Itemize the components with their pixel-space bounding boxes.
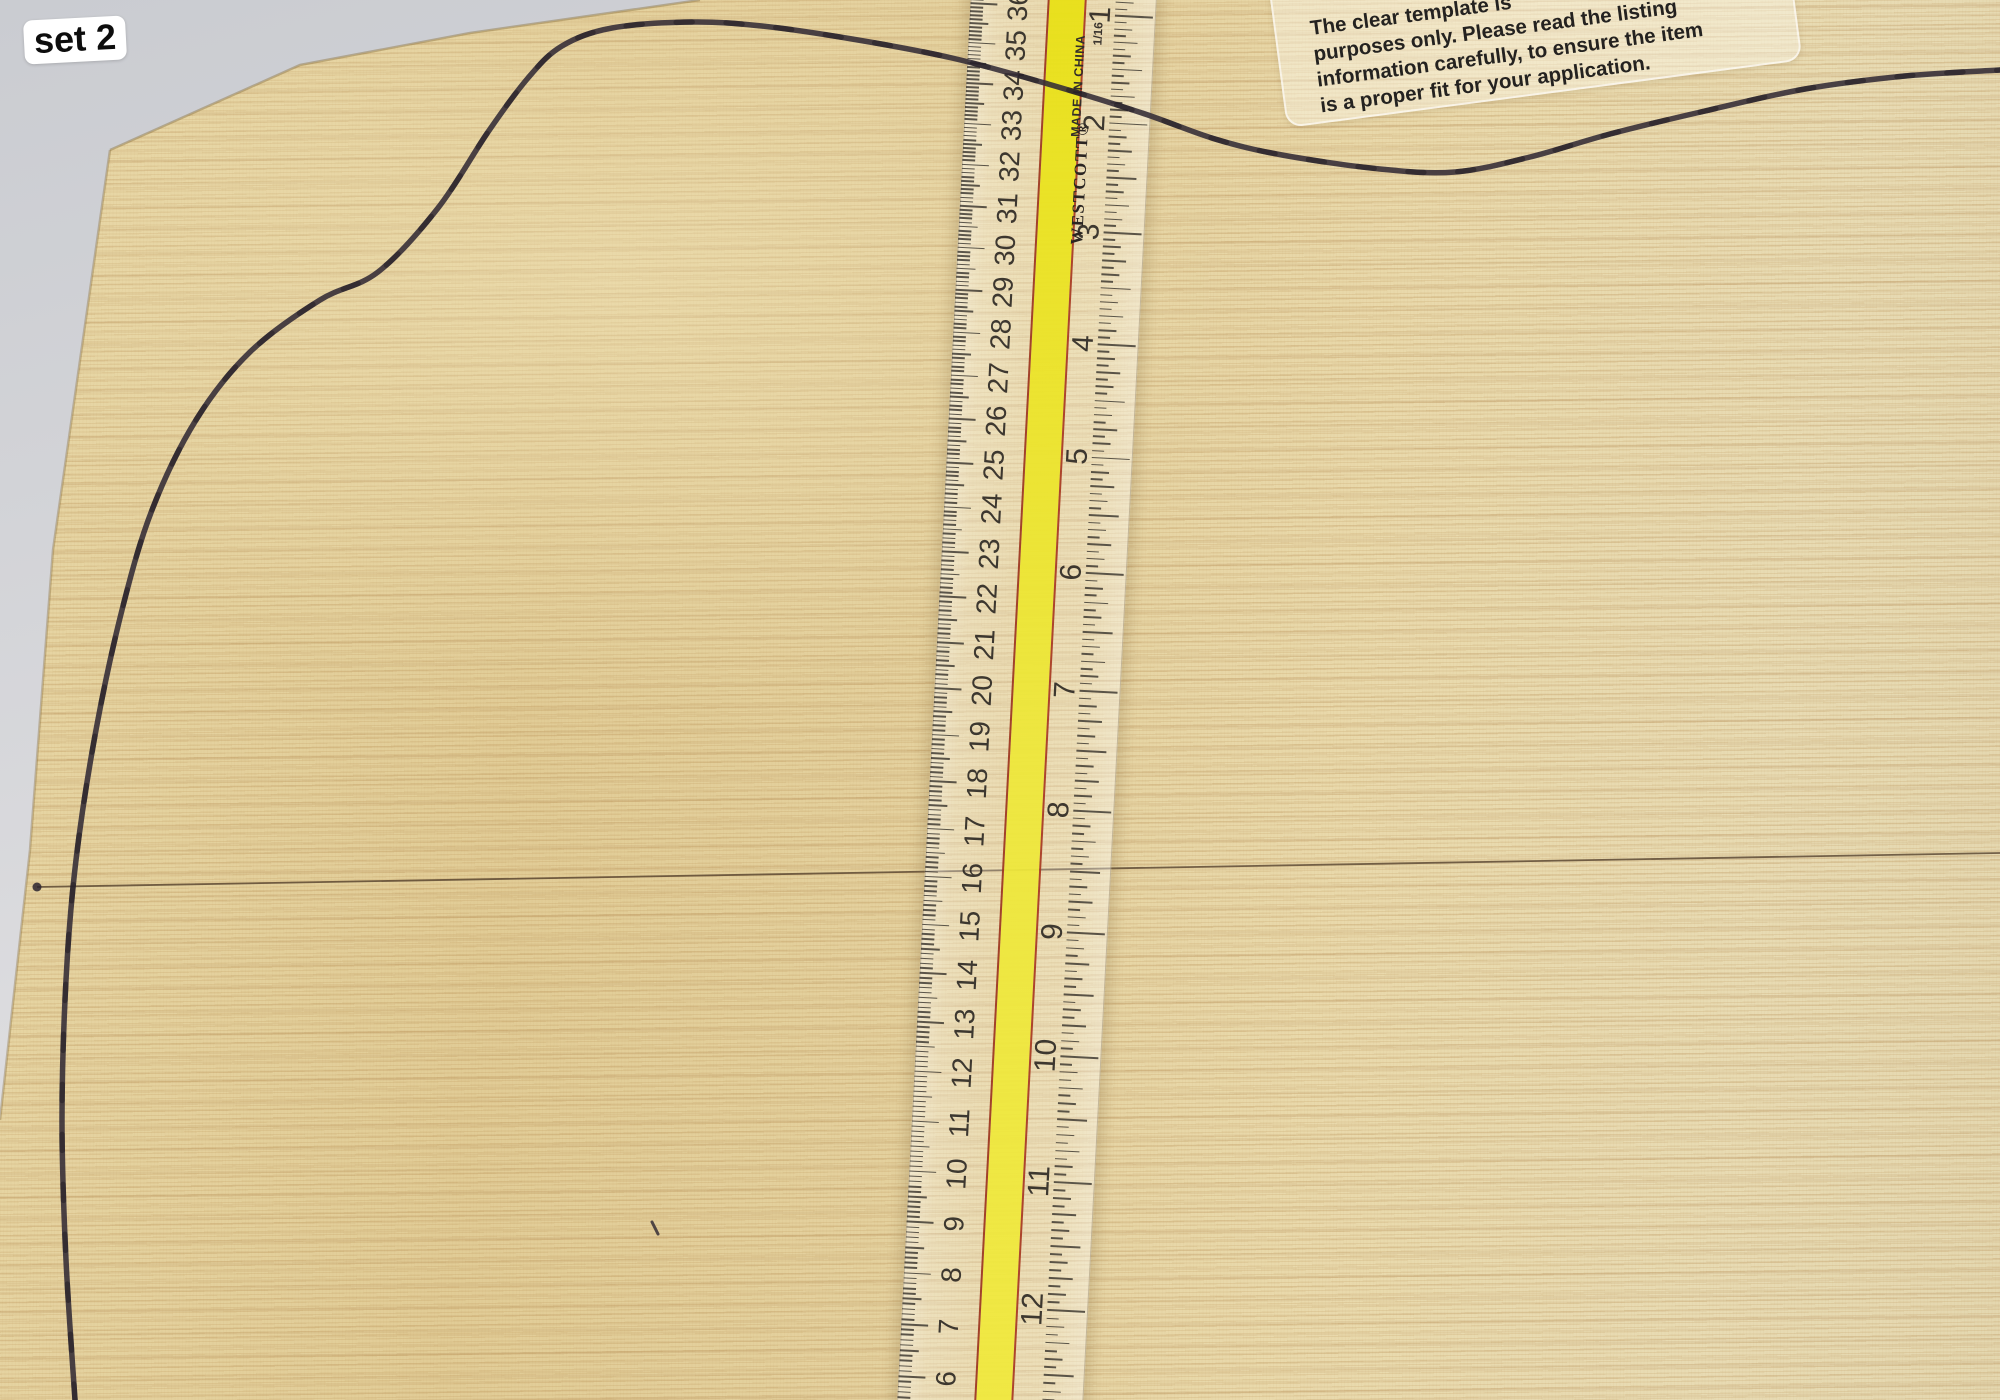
ruler-tick	[932, 738, 945, 740]
ruler-tick	[965, 98, 978, 100]
ruler-tick	[936, 660, 949, 662]
ruler-tick	[947, 444, 960, 446]
ruler-tick	[910, 1150, 923, 1152]
ruler-cm-number: 31	[990, 190, 1026, 226]
ruler-tick	[901, 1334, 914, 1336]
ruler-tick	[914, 1080, 927, 1082]
ruler-tick	[914, 1070, 941, 1073]
ruler-tick	[906, 1221, 933, 1224]
ruler-tick	[961, 184, 980, 187]
ruler-tick	[953, 327, 966, 329]
ruler-tick	[900, 1339, 913, 1341]
ruler-tick	[1070, 878, 1082, 880]
ruler-tick	[908, 1201, 921, 1203]
ruler-tick	[959, 221, 972, 223]
photo-canvas: 3635343332313029282726252423222120191817…	[0, 0, 2000, 1400]
ruler-cm-number: 33	[994, 108, 1030, 144]
ruler-tick	[1043, 1382, 1055, 1384]
ruler-tick	[1044, 1374, 1074, 1377]
ruler-tick	[1107, 163, 1125, 166]
ruler-tick	[905, 1251, 918, 1253]
ruler-tick	[937, 632, 950, 634]
ruler-inch-number: 9	[1035, 914, 1071, 950]
ruler-tick	[963, 143, 982, 146]
ruler-tick	[943, 515, 956, 517]
ruler-tick	[913, 1090, 926, 1092]
ruler-tick	[946, 462, 973, 465]
ruler-tick	[930, 766, 943, 768]
ruler-tick	[1102, 252, 1114, 254]
ruler-tick	[920, 972, 947, 975]
ruler-tick	[1060, 1055, 1098, 1059]
ruler-tick	[922, 933, 935, 935]
ruler-tick	[900, 1344, 913, 1346]
ruler-tick	[965, 106, 978, 108]
ruler-tick	[944, 497, 957, 499]
ruler-tick	[952, 348, 965, 350]
ruler-tick	[957, 263, 970, 265]
ruler-tick	[1063, 1009, 1081, 1012]
ruler-tick	[1112, 62, 1124, 64]
ruler-tick	[1065, 962, 1089, 965]
ruler-tick	[970, 18, 983, 20]
ruler-tick	[934, 701, 947, 703]
ruler-tick	[912, 1115, 925, 1117]
ruler-tick	[929, 799, 942, 801]
ruler-tick	[899, 1365, 912, 1367]
ruler-tick	[913, 1095, 932, 1098]
ruler-tick	[1055, 1150, 1079, 1153]
ruler-tick	[969, 22, 988, 25]
ruler-tick	[925, 866, 938, 868]
ruler-tick	[917, 1021, 944, 1024]
ruler-tick	[1093, 428, 1117, 431]
ruler-inch-number: 11	[1022, 1164, 1058, 1200]
ruler-tick	[901, 1329, 914, 1331]
ruler-tick	[968, 38, 981, 40]
ruler-tick	[1050, 1253, 1062, 1255]
ruler-tick	[952, 353, 971, 356]
ruler-tick	[1087, 543, 1111, 546]
ruler-tick	[951, 370, 964, 372]
ruler-tick	[928, 814, 941, 816]
ruler-tick	[1052, 1213, 1076, 1216]
ruler-tick	[944, 510, 957, 512]
ruler-tick	[1113, 55, 1131, 58]
ruler-tick	[969, 34, 982, 36]
ruler-tick	[942, 542, 955, 544]
ruler-tick	[905, 1257, 918, 1259]
ruler-tick	[1081, 653, 1093, 655]
ruler-tick	[905, 1246, 924, 1249]
ruler-tick	[962, 159, 975, 161]
ruler-tick	[946, 475, 959, 477]
ruler-tick	[915, 1050, 928, 1052]
ruler-tick	[900, 1349, 919, 1352]
ruler-tick	[1106, 190, 1124, 193]
ruler-tick	[955, 289, 982, 292]
ruler-tick	[916, 1041, 929, 1043]
ruler-tick	[1093, 435, 1105, 437]
ruler-tick	[1071, 848, 1083, 850]
ruler-tick	[923, 899, 942, 902]
ruler-tick	[958, 238, 971, 240]
ruler-cm-number: 23	[972, 536, 1008, 572]
ruler-tick	[1100, 301, 1118, 304]
ruler-tick	[912, 1110, 925, 1112]
ruler-tick	[960, 196, 973, 198]
ruler-tick	[899, 1370, 912, 1372]
ruler-tick	[921, 938, 934, 940]
ruler-tick	[1059, 1079, 1071, 1081]
ruler-tick	[1077, 742, 1089, 744]
ruler-tick	[954, 314, 967, 316]
ruler-tick	[903, 1292, 916, 1294]
ruler-tick	[1067, 932, 1105, 936]
ruler-fraction-label: 1/16	[1088, 13, 1108, 54]
ruler-tick	[928, 818, 941, 820]
ruler-tick	[949, 405, 962, 407]
ruler-tick	[952, 357, 965, 359]
ruler-tick	[971, 0, 984, 1]
ruler-tick	[923, 914, 936, 916]
ruler-tick	[964, 127, 977, 129]
ruler-tick	[950, 387, 963, 389]
ruler-tick	[1089, 500, 1107, 503]
ruler-tick	[1094, 421, 1106, 423]
ruler-tick	[1095, 386, 1113, 389]
ruler-tick	[1050, 1261, 1068, 1264]
ruler-tick	[931, 757, 950, 760]
ruler-tick	[1052, 1221, 1064, 1223]
ruler-tick	[951, 366, 964, 368]
ruler-tick	[966, 94, 979, 96]
set-badge: set 2	[23, 15, 127, 64]
ruler-tick	[1096, 378, 1108, 380]
ruler-tick	[945, 488, 958, 490]
ruler-tick	[919, 992, 932, 994]
ruler-tick	[952, 361, 965, 363]
ruler-tick	[1088, 522, 1100, 524]
ruler-tick	[1062, 1017, 1074, 1019]
ruler-tick	[945, 493, 958, 495]
ruler-cm-number: 20	[965, 673, 1001, 709]
ruler-tick	[1065, 970, 1077, 972]
ruler-tick	[922, 923, 949, 926]
ruler-cm-number: 7	[931, 1309, 967, 1345]
ruler-tick	[955, 297, 968, 299]
ruler-cm-number: 35	[998, 27, 1034, 63]
ruler-tick	[906, 1231, 919, 1233]
ruler-tick	[1046, 1334, 1058, 1336]
ruler-tick	[904, 1262, 917, 1264]
ruler-tick	[953, 336, 966, 338]
ruler-tick	[1104, 232, 1142, 236]
ruler-tick	[1045, 1342, 1069, 1345]
ruler-tick	[908, 1196, 927, 1199]
ruler-tick	[1064, 978, 1082, 981]
ruler-tick	[954, 310, 973, 313]
ruler-tick	[967, 66, 980, 68]
ruler-tick	[1086, 572, 1124, 576]
ruler-tick	[942, 546, 955, 548]
ruler-tick	[932, 743, 945, 745]
ruler-tick	[962, 155, 975, 157]
ruler-tick	[954, 318, 967, 320]
ruler-tick	[927, 823, 940, 825]
ruler-tick	[939, 600, 952, 602]
ruler-tick	[1106, 184, 1118, 186]
ruler-tick	[1112, 75, 1124, 77]
ruler-tick	[940, 587, 953, 589]
ruler-tick	[960, 192, 973, 194]
ruler-tick	[933, 724, 946, 726]
ruler-tick	[1075, 772, 1087, 774]
ruler-tick	[938, 623, 951, 625]
ruler-tick	[1049, 1269, 1061, 1271]
ruler-tick	[1106, 177, 1136, 180]
ruler-tick	[929, 790, 942, 792]
ruler-tick	[943, 533, 956, 535]
ruler-tick	[938, 628, 951, 630]
ruler-tick	[1064, 986, 1076, 988]
ruler-tick	[910, 1160, 923, 1162]
ruler-tick	[942, 551, 969, 554]
ruler-tick	[1076, 765, 1094, 768]
ruler-tick	[923, 904, 936, 906]
ruler-cm-number: 25	[976, 447, 1012, 483]
ruler-tick	[1115, 15, 1153, 19]
ruler-tick	[904, 1277, 917, 1279]
ruler-inch-number: 5	[1060, 439, 1096, 475]
ruler-tick	[932, 729, 945, 731]
ruler-tick	[918, 1001, 931, 1003]
ruler-tick	[1062, 1024, 1086, 1027]
ruler-tick	[1054, 1181, 1092, 1185]
ruler-tick	[1076, 757, 1088, 759]
ruler-tick	[968, 46, 981, 48]
ruler-tick	[1105, 211, 1117, 213]
ruler-tick	[961, 180, 974, 182]
ruler-tick	[935, 673, 948, 675]
ruler-tick	[956, 268, 975, 271]
ruler-tick	[1082, 638, 1094, 640]
ruler-tick	[944, 506, 971, 509]
ruler-tick	[909, 1170, 936, 1173]
ruler-tick	[936, 664, 955, 667]
ruler-tick	[904, 1272, 931, 1275]
ruler-tick	[956, 272, 969, 274]
ruler-tick	[943, 528, 962, 531]
ruler-tick	[970, 6, 983, 8]
ruler-tick	[950, 396, 969, 399]
ruler-tick	[1113, 48, 1125, 50]
ruler-tick	[1056, 1134, 1074, 1137]
ruler-tick	[1101, 280, 1113, 282]
ruler-tick	[1084, 602, 1108, 605]
ruler-tick	[1062, 1032, 1074, 1034]
ruler-tick	[1088, 529, 1106, 532]
ruler-tick	[939, 605, 952, 607]
ruler-tick	[927, 828, 954, 831]
ruler-tick	[1072, 832, 1084, 834]
ruler-tick	[1114, 35, 1126, 37]
ruler-tick	[932, 734, 959, 737]
ruler-tick	[947, 457, 960, 459]
ruler-tick	[1074, 787, 1086, 789]
ruler-tick	[962, 163, 989, 166]
ruler-tick	[1100, 308, 1112, 310]
ruler-tick	[942, 537, 955, 539]
ruler-tick	[908, 1185, 921, 1187]
ruler-tick	[1049, 1277, 1073, 1280]
ruler-tick	[1110, 102, 1122, 104]
ruler-tick	[946, 470, 959, 472]
ruler-tick	[1068, 909, 1080, 911]
ruler-tick	[1083, 631, 1113, 634]
ruler-tick	[948, 422, 961, 424]
ruler-tick	[910, 1155, 923, 1157]
ruler-tick	[919, 982, 932, 984]
ruler-tick	[1087, 551, 1099, 553]
ruler-tick	[951, 374, 978, 377]
ruler-tick	[914, 1075, 927, 1077]
ruler-cm-number: 6	[929, 1361, 965, 1397]
ruler-tick	[947, 448, 960, 450]
ruler-tick	[924, 880, 937, 882]
ruler-tick	[956, 284, 969, 286]
ruler-cm-number: 12	[944, 1056, 980, 1092]
ruler-tick	[952, 344, 965, 346]
ruler-tick	[960, 209, 973, 211]
ruler-tick	[1081, 660, 1105, 663]
ruler-tick	[963, 139, 976, 141]
ruler-cm-number: 29	[985, 274, 1021, 310]
ruler-tick	[959, 226, 978, 229]
ruler-tick	[1057, 1118, 1087, 1121]
ruler-tick	[920, 957, 933, 959]
ruler-tick	[1044, 1366, 1056, 1368]
ruler-tick	[1056, 1142, 1068, 1144]
ruler-tick	[963, 151, 976, 153]
ruler-tick	[957, 259, 970, 261]
ruler-tick	[927, 832, 940, 834]
ruler-tick	[1105, 197, 1117, 199]
ruler-tick	[939, 591, 952, 593]
ruler-inch-number: 6	[1054, 555, 1090, 591]
ruler-tick	[903, 1282, 916, 1284]
ruler-tick	[902, 1313, 915, 1315]
ruler-tick	[1050, 1245, 1080, 1248]
ruler-tick	[1075, 780, 1099, 783]
ruler-tick	[940, 582, 953, 584]
ruler-tick	[922, 919, 935, 921]
ruler-tick	[1064, 993, 1094, 996]
ruler-tick	[910, 1145, 929, 1148]
ruler-tick	[908, 1190, 921, 1192]
ruler-tick	[1098, 343, 1136, 347]
ruler-tick	[905, 1241, 918, 1243]
ruler-tick	[917, 1011, 930, 1013]
ruler-tick	[970, 10, 983, 12]
ruler-tick	[1101, 273, 1119, 276]
ruler-tick	[934, 697, 947, 699]
ruler-tick	[1051, 1229, 1069, 1232]
ruler-tick	[968, 42, 995, 45]
ruler-tick	[933, 710, 952, 713]
ruler-tick	[947, 453, 960, 455]
ruler-tick	[1078, 712, 1090, 714]
ruler-tick	[918, 1006, 931, 1008]
ruler-tick	[926, 847, 939, 849]
ruler-tick	[1070, 863, 1082, 865]
ruler-tick	[935, 683, 948, 685]
ruler-inch-number: 4	[1066, 325, 1102, 361]
ruler-tick	[948, 426, 961, 428]
ruler-tick	[915, 1055, 928, 1057]
ruler-tick	[912, 1125, 925, 1127]
ruler-tick	[938, 618, 957, 621]
ruler-tick	[909, 1180, 922, 1182]
ruler-tick	[936, 650, 949, 652]
ruler-tick	[911, 1130, 924, 1132]
ruler-tick	[911, 1140, 924, 1142]
ruler-cm-number: 34	[996, 67, 1032, 103]
ruler-tick	[916, 1046, 935, 1049]
ruler-tick	[1105, 204, 1129, 207]
ruler-tick	[968, 50, 981, 52]
ruler-cm-number: 30	[988, 232, 1024, 268]
ruler-tick	[930, 780, 957, 783]
ruler-tick	[948, 431, 961, 433]
ruler-tick	[967, 74, 980, 76]
ruler-tick	[930, 776, 943, 778]
ruler-tick	[899, 1360, 912, 1362]
ruler-tick	[1058, 1102, 1076, 1105]
ruler-tick	[1088, 536, 1100, 538]
ruler-tick	[944, 501, 957, 503]
ruler-tick	[1094, 414, 1112, 417]
ruler-tick	[933, 720, 946, 722]
ruler-tick	[959, 213, 972, 215]
ruler-tick	[967, 70, 980, 72]
ruler-tick	[898, 1391, 911, 1393]
ruler-tick	[964, 118, 977, 120]
ruler-tick	[925, 871, 938, 873]
ruler-tick	[906, 1226, 919, 1228]
ruler-tick	[924, 885, 937, 887]
ruler-tick	[969, 30, 982, 32]
ruler-tick	[1055, 1158, 1067, 1160]
ruler-tick	[934, 687, 961, 690]
ruler-tick	[926, 842, 939, 844]
ruler-tick	[919, 977, 932, 979]
ruler-tick	[1085, 594, 1097, 596]
ruler-tick	[1109, 122, 1147, 126]
ruler-tick	[929, 795, 942, 797]
ruler-tick	[1083, 616, 1101, 619]
ruler-tick	[1113, 42, 1137, 45]
ruler-tick	[917, 1016, 930, 1018]
ruler-tick	[1048, 1285, 1060, 1287]
ruler-tick	[909, 1175, 922, 1177]
ruler-inch-number: 12	[1015, 1292, 1051, 1328]
ruler-tick	[958, 234, 971, 236]
ruler-tick	[1095, 400, 1125, 403]
ruler-tick	[933, 706, 946, 708]
ruler-cm-number: 36	[1000, 0, 1036, 23]
ruler-tick	[899, 1354, 912, 1356]
